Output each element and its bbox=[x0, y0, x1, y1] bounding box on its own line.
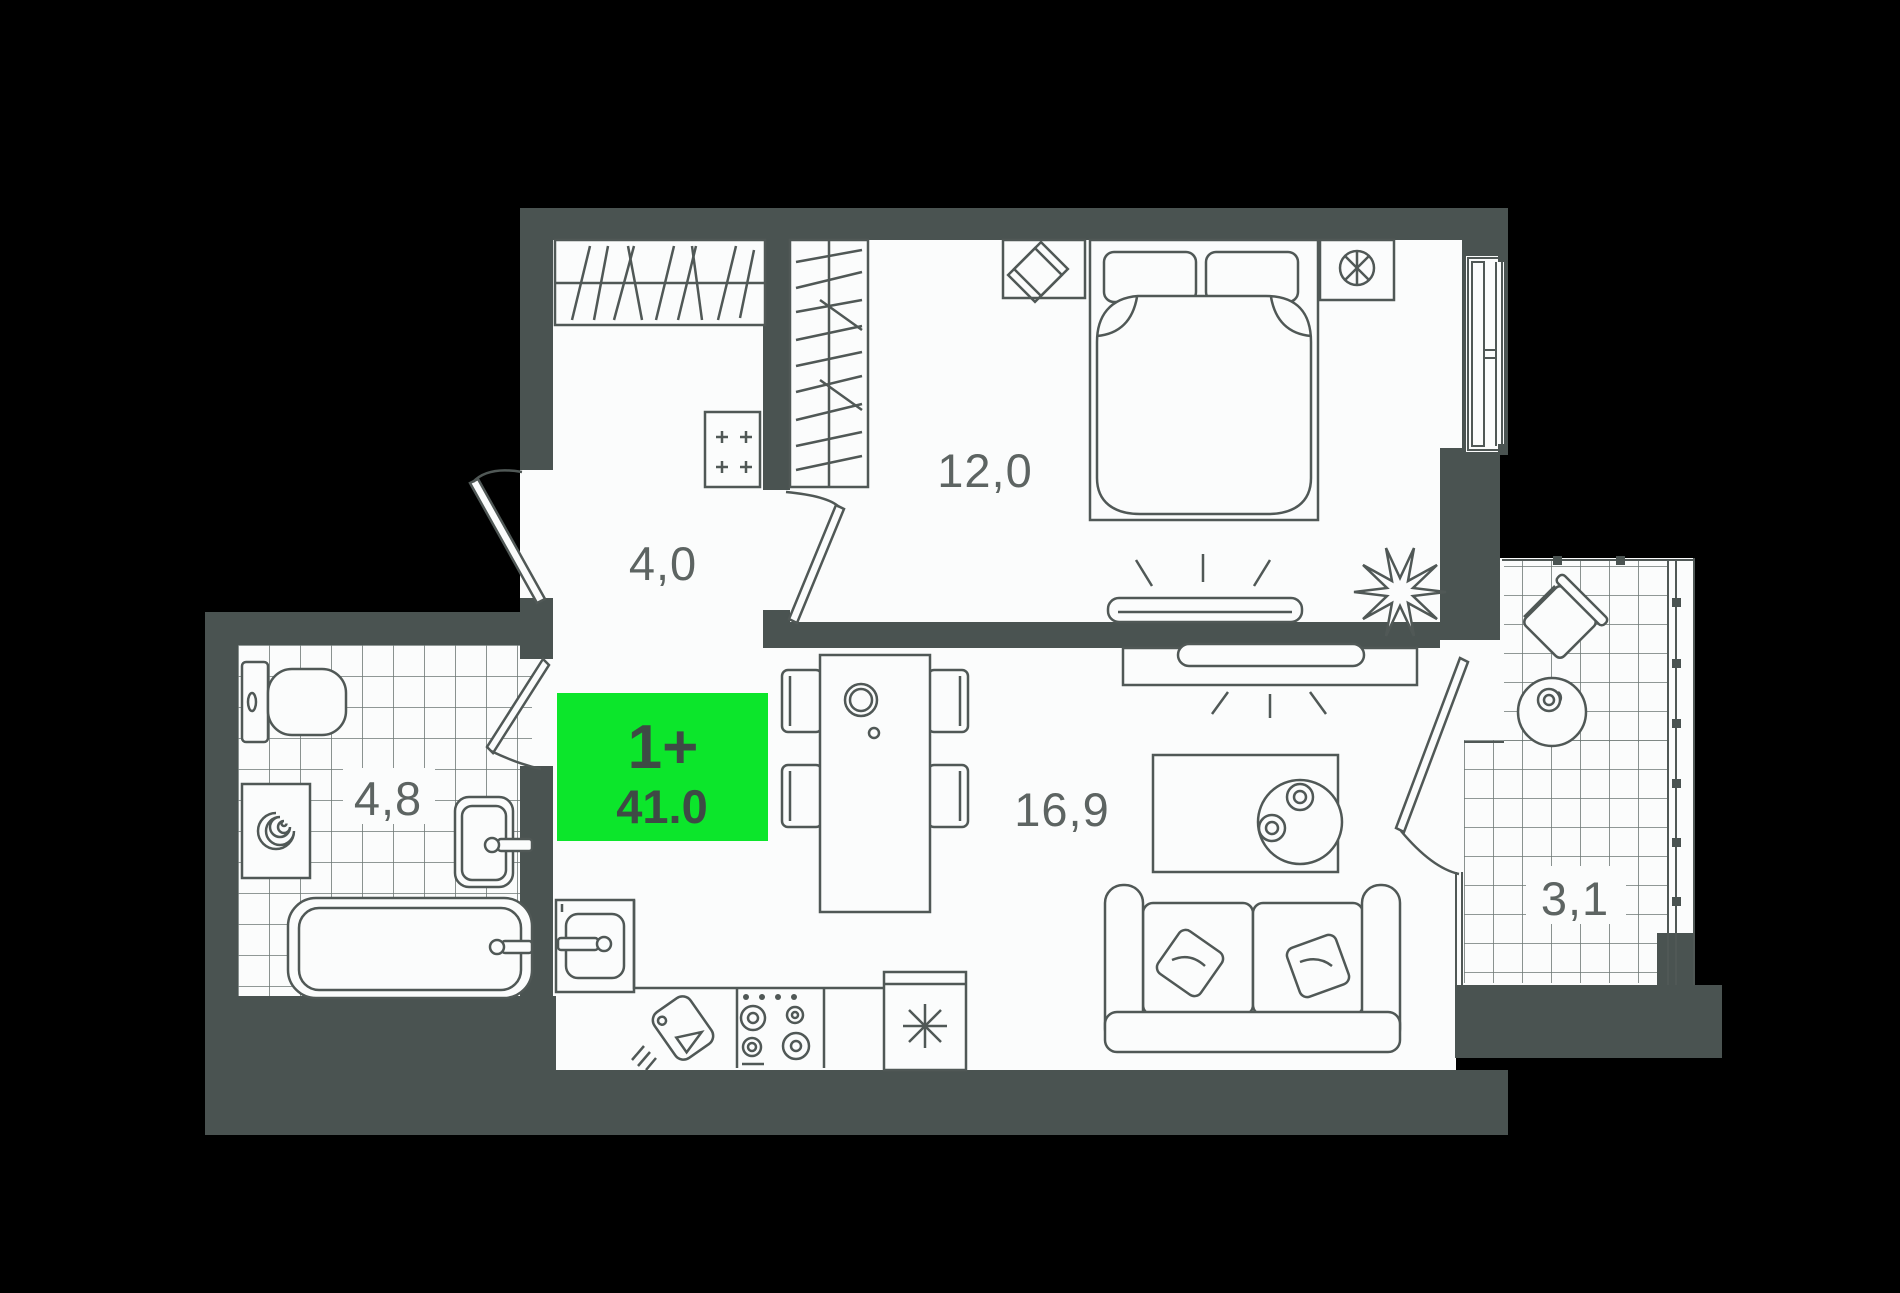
wall-bath-left bbox=[205, 612, 238, 1042]
wall-bath-top bbox=[205, 612, 553, 645]
floorplan: 4,0 12,0 4,8 16,9 3,1 1+ 41.0 bbox=[0, 0, 1900, 1293]
wall-hall-bedroom bbox=[763, 240, 790, 490]
bathroom-area-label: 4,8 bbox=[354, 772, 422, 825]
chair-icon bbox=[928, 670, 968, 732]
bedroom-door-gap bbox=[763, 490, 790, 612]
wall-hall-left bbox=[520, 208, 553, 470]
wall-bath-right-upper bbox=[520, 645, 553, 659]
pillow bbox=[1206, 252, 1298, 302]
chair-icon bbox=[782, 670, 822, 732]
bathtub-icon bbox=[288, 898, 532, 998]
kitchen-sink-icon bbox=[556, 900, 634, 992]
balcony-table-icon bbox=[1518, 678, 1586, 746]
pillow bbox=[1104, 252, 1196, 302]
coffee-table-icon bbox=[1153, 755, 1342, 872]
sofa-icon bbox=[1105, 885, 1400, 1052]
duvet bbox=[1097, 296, 1311, 514]
hallway-area-label: 4,0 bbox=[629, 537, 697, 590]
bedroom-area-label: 12,0 bbox=[937, 444, 1032, 497]
wall-top bbox=[520, 208, 1508, 240]
window-nub bbox=[1498, 444, 1506, 452]
cup bbox=[1259, 815, 1285, 841]
badge-rooms-label: 1+ bbox=[628, 713, 699, 782]
sofa-seat bbox=[1105, 1012, 1400, 1052]
wall-bottom-bath bbox=[205, 996, 556, 1135]
nightstand-left bbox=[1003, 240, 1085, 302]
wall-balcony-bottom bbox=[1455, 985, 1722, 1058]
apartment-badge: 1+ 41.0 bbox=[557, 693, 768, 841]
balcony-tiles-lower bbox=[1464, 740, 1668, 983]
bedroom-window bbox=[1466, 254, 1506, 452]
toilet-icon bbox=[242, 662, 346, 742]
chair-icon bbox=[782, 765, 822, 827]
bed-icon bbox=[1090, 240, 1318, 520]
balcony-area-label: 3,1 bbox=[1541, 872, 1609, 925]
window-nub bbox=[1498, 254, 1506, 262]
wall-bottom-living bbox=[556, 1070, 1508, 1135]
washing-machine-icon bbox=[242, 784, 310, 878]
fridge-snowflake-icon bbox=[884, 972, 966, 1070]
wall-living-balcony bbox=[1440, 448, 1500, 640]
electric-panel-icon bbox=[705, 412, 760, 487]
living-kitchen-area-label: 16,9 bbox=[1014, 783, 1109, 836]
chair-icon bbox=[928, 765, 968, 827]
floorplan-canvas: 4,0 12,0 4,8 16,9 3,1 1+ 41.0 bbox=[0, 0, 1900, 1293]
wall-bedroom-door-stub bbox=[763, 610, 790, 624]
nightstand-right bbox=[1320, 240, 1394, 300]
cup bbox=[1287, 784, 1313, 810]
tv-icon bbox=[1108, 598, 1302, 622]
tv-icon bbox=[1178, 644, 1364, 666]
badge-total-area: 41.0 bbox=[616, 780, 707, 833]
